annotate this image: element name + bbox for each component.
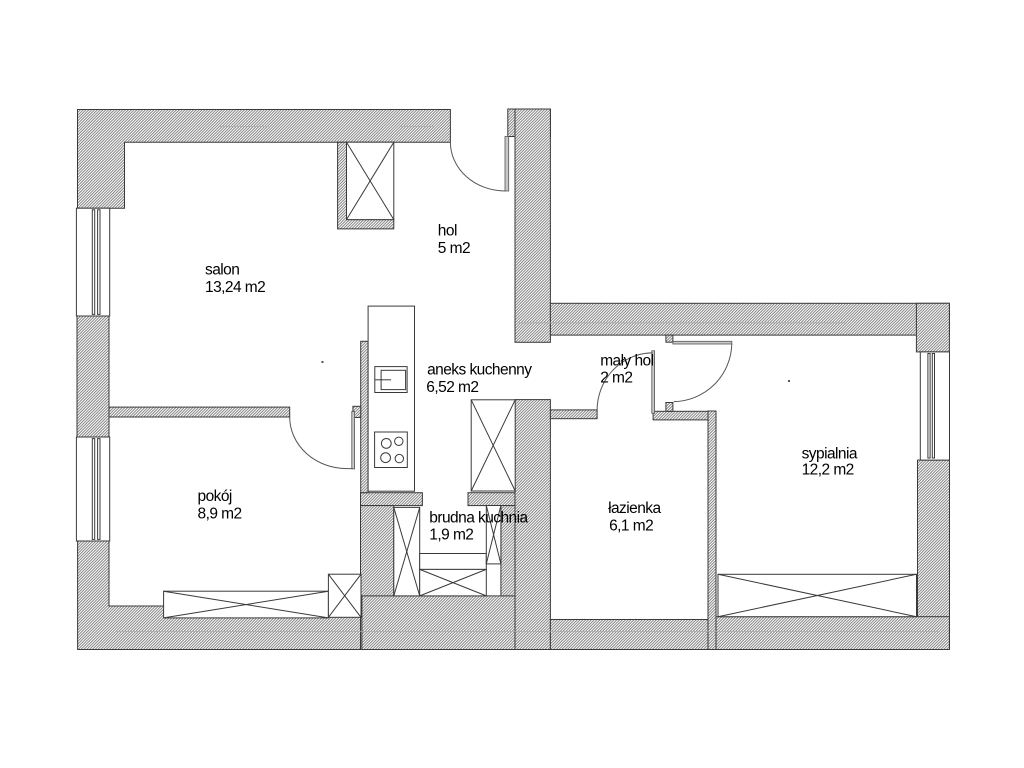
svg-text:1,9 m2: 1,9 m2 bbox=[429, 527, 473, 544]
svg-text:salon: salon bbox=[205, 262, 239, 279]
svg-text:5 m2: 5 m2 bbox=[438, 240, 470, 257]
svg-text:8,9 m2: 8,9 m2 bbox=[198, 506, 242, 523]
svg-text:6,52 m2: 6,52 m2 bbox=[426, 379, 478, 396]
svg-text:pokój: pokój bbox=[198, 488, 232, 505]
svg-text:brudna kuchnia: brudna kuchnia bbox=[429, 510, 528, 527]
svg-text:6,1 m2: 6,1 m2 bbox=[609, 518, 653, 535]
svg-text:sypialnia: sypialnia bbox=[802, 446, 858, 463]
svg-text:mały hol: mały hol bbox=[600, 352, 653, 369]
svg-text:12,2 m2: 12,2 m2 bbox=[802, 462, 854, 479]
svg-text:hol: hol bbox=[438, 222, 457, 239]
svg-text:aneks kuchenny: aneks kuchenny bbox=[427, 362, 532, 379]
svg-text:2 m2: 2 m2 bbox=[600, 370, 632, 387]
svg-text:łazienka: łazienka bbox=[608, 500, 661, 517]
svg-text:13,24 m2: 13,24 m2 bbox=[205, 279, 265, 296]
